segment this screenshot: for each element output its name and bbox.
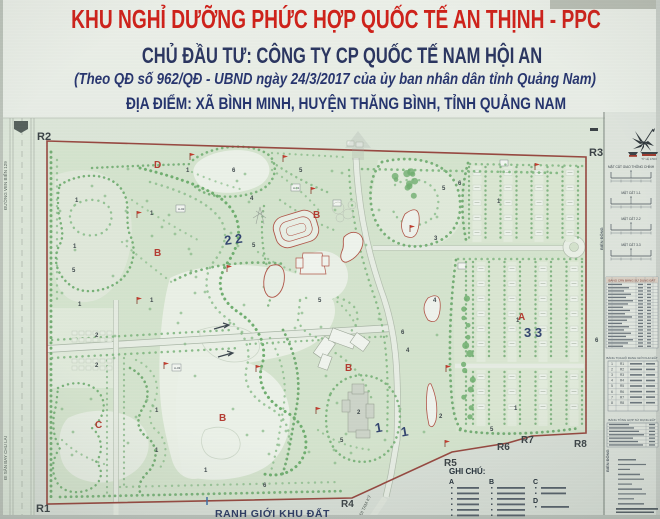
svg-text:B: B [219, 413, 226, 424]
svg-text:R3: R3 [620, 373, 624, 377]
svg-text:7: 7 [611, 395, 613, 399]
svg-text:4: 4 [611, 379, 613, 383]
svg-text:R6: R6 [497, 442, 510, 453]
svg-text:BẢNG TỔNG HỢP SỬ DỤNG ĐẤT: BẢNG TỔNG HỢP SỬ DỤNG ĐẤT [608, 417, 656, 422]
svg-text:TỶ LỆ 1/500: TỶ LỆ 1/500 [641, 156, 657, 161]
svg-text:C: C [95, 420, 102, 431]
svg-text:B: B [345, 363, 352, 374]
svg-text:R8: R8 [574, 439, 587, 450]
svg-text:R2: R2 [37, 131, 51, 143]
svg-text:R7: R7 [620, 395, 624, 399]
svg-text:BẢNG CÂN BẰNG SỬ DỤNG ĐẤT: BẢNG CÂN BẰNG SỬ DỤNG ĐẤT [609, 278, 656, 283]
svg-text:A: A [449, 479, 454, 486]
svg-text:R7: R7 [521, 435, 534, 446]
svg-text:A-02: A-02 [178, 207, 185, 211]
svg-text:2 2: 2 2 [223, 231, 243, 248]
svg-text:R8: R8 [620, 401, 624, 405]
svg-text:3: 3 [611, 373, 613, 377]
svg-text:MẶT CẮT 3-3: MẶT CẮT 3-3 [621, 242, 641, 247]
svg-text:B: B [489, 479, 494, 486]
svg-text:3 3: 3 3 [524, 325, 542, 340]
svg-text:C: C [533, 479, 538, 486]
svg-text:6: 6 [611, 390, 613, 394]
svg-text:GHI CHÚ:: GHI CHÚ: [449, 467, 485, 476]
svg-text:B: B [313, 210, 320, 221]
svg-text:2: 2 [611, 368, 613, 372]
svg-text:R5: R5 [620, 384, 624, 388]
svg-text:A-03: A-03 [174, 366, 181, 370]
svg-text:BIỂN ĐÔNG: BIỂN ĐÔNG [599, 227, 604, 250]
svg-text:R4: R4 [341, 499, 354, 510]
svg-text:8: 8 [611, 401, 613, 405]
svg-text:RANH GIỚI KHU ĐẤT: RANH GIỚI KHU ĐẤT [215, 507, 330, 519]
svg-text:MẶT CẮT 1-1: MẶT CẮT 1-1 [621, 190, 641, 195]
svg-text:D: D [533, 498, 538, 505]
svg-text:R2: R2 [620, 368, 624, 372]
svg-text:R4: R4 [620, 379, 624, 383]
svg-text:MẶT CẮT GIAO THÔNG CHÍNH: MẶT CẮT GIAO THÔNG CHÍNH [608, 164, 655, 169]
svg-text:5: 5 [611, 384, 613, 388]
svg-text:BIỂN ĐÔNG: BIỂN ĐÔNG [605, 449, 610, 472]
svg-text:1: 1 [611, 362, 613, 366]
svg-text:R1: R1 [36, 503, 50, 515]
svg-text:MẶT CẮT 2-2: MẶT CẮT 2-2 [621, 216, 641, 221]
svg-text:D: D [154, 160, 161, 171]
svg-text:B: B [154, 248, 161, 259]
svg-text:BẢNG TỌA ĐỘ RANH GIỚI KHU ĐẤT: BẢNG TỌA ĐỘ RANH GIỚI KHU ĐẤT [606, 355, 658, 360]
svg-text:R3: R3 [589, 147, 603, 159]
svg-text:R1: R1 [620, 362, 624, 366]
svg-text:R6: R6 [620, 390, 624, 394]
